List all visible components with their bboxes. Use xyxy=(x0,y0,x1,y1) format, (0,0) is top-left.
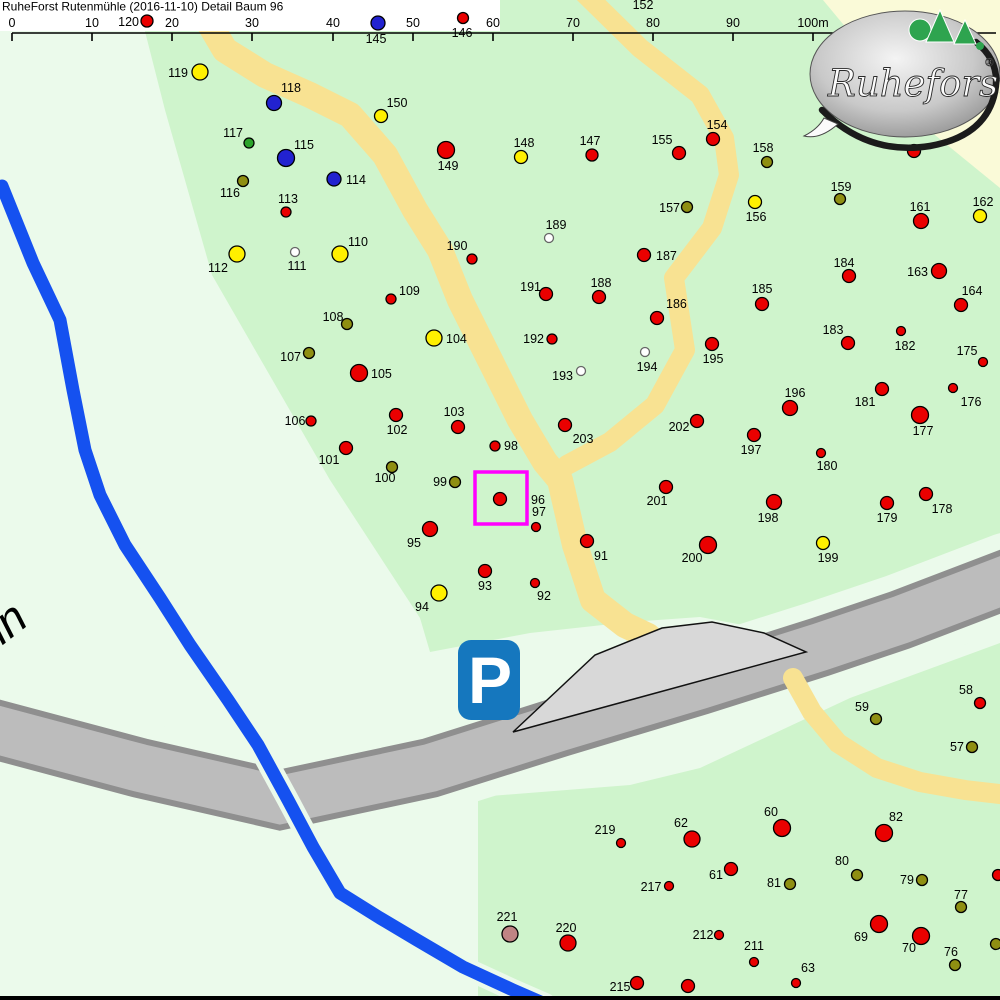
tree-dot-183[interactable] xyxy=(842,337,855,350)
tree-dot-215[interactable] xyxy=(631,977,644,990)
tree-dot-159[interactable] xyxy=(835,194,846,205)
tree-label-177: 177 xyxy=(913,424,934,438)
extra-labels: 152 xyxy=(633,0,654,12)
tree-dot-201[interactable] xyxy=(660,481,673,494)
tree-label-211: 211 xyxy=(744,939,764,953)
tree-label-82: 82 xyxy=(889,810,903,824)
tree-dot-195[interactable] xyxy=(706,338,719,351)
tree-dot-81[interactable] xyxy=(785,879,796,890)
map-title: RuheForst Rutenmühle (2016-11-10) Detail… xyxy=(2,0,284,14)
tree-label-120: 120 xyxy=(118,15,139,29)
tree-dot-98[interactable] xyxy=(490,441,500,451)
tree-label-92: 92 xyxy=(537,589,551,603)
tree-dot-164[interactable] xyxy=(955,299,968,312)
tree-dot-187[interactable] xyxy=(638,249,651,262)
tree-dot-107[interactable] xyxy=(304,348,315,359)
tree-label-198: 198 xyxy=(758,511,779,525)
tree-dot-198[interactable] xyxy=(767,495,782,510)
tree-label-158: 158 xyxy=(753,141,774,155)
tree-label-109: 109 xyxy=(399,284,420,298)
tree-label-98: 98 xyxy=(504,439,518,453)
tree-label-105: 105 xyxy=(371,367,392,381)
tree-label-154: 154 xyxy=(707,118,728,132)
logo-wordmark: Ruheforst xyxy=(827,62,1000,105)
tree-label-70: 70 xyxy=(902,941,916,955)
tree-dot-105[interactable] xyxy=(351,365,368,382)
scale-tick-label: 60 xyxy=(486,16,500,30)
tree-label-62: 62 xyxy=(674,816,688,830)
tree-dot-57[interactable] xyxy=(967,742,978,753)
tree-label-179: 179 xyxy=(877,511,898,525)
tree-dot-190[interactable] xyxy=(467,254,477,264)
tree-label-191: 191 xyxy=(520,280,541,294)
tree-dot-103[interactable] xyxy=(452,421,465,434)
tree-dot-161[interactable] xyxy=(914,214,929,229)
tree-label-79: 79 xyxy=(900,873,914,887)
tree-dot-179[interactable] xyxy=(881,497,894,510)
tree-label-93: 93 xyxy=(478,579,492,593)
tree-label-193: 193 xyxy=(552,369,573,383)
tree-label-99: 99 xyxy=(433,475,447,489)
tree-dot-180[interactable] xyxy=(817,449,826,458)
tree-label-111: 111 xyxy=(287,259,306,273)
tree-dot-182[interactable] xyxy=(897,327,906,336)
tree-dot-211[interactable] xyxy=(750,958,759,967)
tree-label-197: 197 xyxy=(741,443,762,457)
tree-label-106: 106 xyxy=(285,414,306,428)
tree-label-183: 183 xyxy=(823,323,844,337)
tree-label-118: 118 xyxy=(281,81,301,95)
tree-label-97: 97 xyxy=(532,505,546,519)
tree-dot-185[interactable] xyxy=(756,298,769,311)
tree-dot-102[interactable] xyxy=(390,409,403,422)
tree-label-159: 159 xyxy=(831,180,852,194)
tree-dot-203[interactable] xyxy=(559,419,572,432)
tree-dot-145[interactable] xyxy=(371,16,385,30)
tree-label-200: 200 xyxy=(682,551,703,565)
tree-label-119: 119 xyxy=(168,66,188,80)
tree-dot-62[interactable] xyxy=(684,831,700,847)
scale-tick-label: 40 xyxy=(326,16,340,30)
tree-dot-77[interactable] xyxy=(956,902,967,913)
tree-label-103: 103 xyxy=(444,405,465,419)
tree-dot-197[interactable] xyxy=(748,429,761,442)
tree-dot-178[interactable] xyxy=(920,488,933,501)
tree-dot-184[interactable] xyxy=(843,270,856,283)
tree-label-215: 215 xyxy=(610,980,631,994)
tree-label-107: 107 xyxy=(280,350,301,364)
tree-dot-150[interactable] xyxy=(375,110,388,123)
scale-tick-label: 10 xyxy=(85,16,99,30)
tree-label-217: 217 xyxy=(641,880,662,894)
tree-dot-189[interactable] xyxy=(545,234,554,243)
parking-icon-letter: P xyxy=(468,643,512,717)
tree-label-57: 57 xyxy=(950,740,964,754)
tree-label-81: 81 xyxy=(767,876,781,890)
tree-label-185: 185 xyxy=(752,282,773,296)
tree-label-196: 196 xyxy=(785,386,806,400)
tree-dot-unlabeled[interactable] xyxy=(993,870,1000,881)
tree-dot-59[interactable] xyxy=(871,714,882,725)
tree-label-219: 219 xyxy=(595,823,616,837)
tree-label-147: 147 xyxy=(580,134,601,148)
tree-dot-148[interactable] xyxy=(515,151,528,164)
tree-label-189: 189 xyxy=(546,218,567,232)
tree-dot-119[interactable] xyxy=(192,64,208,80)
tree-label-148: 148 xyxy=(514,136,535,150)
tree-dot-147[interactable] xyxy=(586,149,598,161)
tree-label-190: 190 xyxy=(447,239,468,253)
tree-dot-196[interactable] xyxy=(783,401,798,416)
tree-label-192: 192 xyxy=(523,332,544,346)
logo-tree-dot-icon xyxy=(976,42,984,50)
tree-label-76: 76 xyxy=(944,945,958,959)
tree-dot-91[interactable] xyxy=(581,535,594,548)
scale-tick-label: 100m xyxy=(797,16,828,30)
tree-label-176: 176 xyxy=(961,395,982,409)
tree-dot-118[interactable] xyxy=(267,96,282,111)
tree-label-114: 114 xyxy=(346,173,366,187)
tree-label-117: 117 xyxy=(223,126,243,140)
tree-dot-97[interactable] xyxy=(532,523,541,532)
tree-dot-149[interactable] xyxy=(438,142,455,159)
tree-label-104: 104 xyxy=(446,332,467,346)
tree-label-108: 108 xyxy=(323,310,344,324)
tree-label-161: 161 xyxy=(910,200,931,214)
tree-label-203: 203 xyxy=(573,432,594,446)
tree-dot-193[interactable] xyxy=(577,367,586,376)
tree-dot-61[interactable] xyxy=(725,863,738,876)
tree-dot-106[interactable] xyxy=(306,416,316,426)
tree-dot-117[interactable] xyxy=(244,138,254,148)
tree-dot-154[interactable] xyxy=(707,133,720,146)
tree-label-181: 181 xyxy=(855,395,876,409)
tree-dot-80[interactable] xyxy=(852,870,863,881)
tree-label-199: 199 xyxy=(818,551,839,565)
tree-label-149: 149 xyxy=(438,159,459,173)
scale-tick-label: 90 xyxy=(726,16,740,30)
logo-registered-mark: ® xyxy=(984,56,995,69)
scale-tick-label: 80 xyxy=(646,16,660,30)
tree-label-95: 95 xyxy=(407,536,421,550)
tree-label-220: 220 xyxy=(556,921,577,935)
tree-dot-175[interactable] xyxy=(979,358,988,367)
tree-dot-158[interactable] xyxy=(762,157,773,168)
tree-label-102: 102 xyxy=(387,423,408,437)
tree-label-194: 194 xyxy=(637,360,658,374)
tree-label-178: 178 xyxy=(932,502,953,516)
tree-label-77: 77 xyxy=(954,888,968,902)
tree-dot-111[interactable] xyxy=(291,248,300,257)
tree-label-162: 162 xyxy=(973,195,994,209)
tree-label-58: 58 xyxy=(959,683,973,697)
tree-label-163: 163 xyxy=(907,265,928,279)
tree-label-184: 184 xyxy=(834,256,855,270)
scale-tick-label: 20 xyxy=(165,16,179,30)
tree-dot-104[interactable] xyxy=(426,330,442,346)
tree-dot-199[interactable] xyxy=(817,537,830,550)
tree-label-94: 94 xyxy=(415,600,429,614)
tree-dot-95[interactable] xyxy=(423,522,438,537)
tree-dot-162[interactable] xyxy=(974,210,987,223)
tree-dot-176[interactable] xyxy=(949,384,958,393)
tree-dot-214[interactable] xyxy=(682,980,695,993)
scale-tick-label: 0 xyxy=(9,16,16,30)
tree-dot-221[interactable] xyxy=(502,926,518,942)
tree-dot-unlabeled[interactable] xyxy=(991,939,1000,950)
tree-label-113: 113 xyxy=(278,192,298,206)
tree-label-100: 100 xyxy=(375,471,396,485)
tree-label-221: 221 xyxy=(497,910,518,924)
tree-dot-217[interactable] xyxy=(665,882,674,891)
tree-label-69: 69 xyxy=(854,930,868,944)
tree-label-59: 59 xyxy=(855,700,869,714)
tree-label-155: 155 xyxy=(652,133,673,147)
tree-label-116: 116 xyxy=(220,186,240,200)
scale-tick-label: 70 xyxy=(566,16,580,30)
tree-dot-109[interactable] xyxy=(386,294,396,304)
tree-dot-181[interactable] xyxy=(876,383,889,396)
tree-label-115: 115 xyxy=(294,138,314,152)
bottom-border xyxy=(0,996,1000,1000)
tree-label-186: 186 xyxy=(666,297,687,311)
tree-dot-177[interactable] xyxy=(912,407,929,424)
tree-label-63: 63 xyxy=(801,961,815,975)
tree-dot-82[interactable] xyxy=(876,825,893,842)
tree-dot-79[interactable] xyxy=(917,875,928,886)
tree-dot-146[interactable] xyxy=(458,13,469,24)
tree-dot-163[interactable] xyxy=(932,264,947,279)
tree-label-187: 187 xyxy=(656,249,677,263)
tree-dot-202[interactable] xyxy=(691,415,704,428)
tree-label-156: 156 xyxy=(746,210,767,224)
tree-label-60: 60 xyxy=(764,805,778,819)
tree-dot-157[interactable] xyxy=(682,202,693,213)
tree-dot-92[interactable] xyxy=(531,579,540,588)
tree-dot-58[interactable] xyxy=(975,698,986,709)
tree-label-188: 188 xyxy=(591,276,612,290)
tree-label-202: 202 xyxy=(669,420,690,434)
tree-dot-93[interactable] xyxy=(479,565,492,578)
tree-label-201: 201 xyxy=(647,494,668,508)
tree-label-61: 61 xyxy=(709,868,723,882)
tree-dot-192[interactable] xyxy=(547,334,557,344)
tree-label-145: 145 xyxy=(366,32,387,46)
tree-dot-156[interactable] xyxy=(749,196,762,209)
tree-dot-155[interactable] xyxy=(673,147,686,160)
tree-label-175: 175 xyxy=(957,344,978,358)
tree-dot-120[interactable] xyxy=(141,15,153,27)
tree-label-157: 157 xyxy=(659,201,680,215)
tree-dot-112[interactable] xyxy=(229,246,245,262)
tree-dot-94[interactable] xyxy=(431,585,447,601)
tree-label-80: 80 xyxy=(835,854,849,868)
tree-dot-60[interactable] xyxy=(774,820,791,837)
tree-dot-191[interactable] xyxy=(540,288,553,301)
tree-label-110: 110 xyxy=(348,235,368,249)
tree-label-150: 150 xyxy=(387,96,408,110)
tree-dot-115[interactable] xyxy=(278,150,295,167)
tree-dot-69[interactable] xyxy=(871,916,888,933)
tree-dot-219[interactable] xyxy=(617,839,626,848)
tree-dot-99[interactable] xyxy=(450,477,461,488)
tree-label-146: 146 xyxy=(452,26,473,40)
tree-dot-63[interactable] xyxy=(792,979,801,988)
tree-dot-110[interactable] xyxy=(332,246,348,262)
tree-dot-186[interactable] xyxy=(651,312,664,325)
tree-dot-116[interactable] xyxy=(238,176,249,187)
forest-map: hn RuheForst Rutenmühle (2016-11-10) Det… xyxy=(0,0,1000,1000)
tree-dot-194[interactable] xyxy=(641,348,650,357)
map-root: hn RuheForst Rutenmühle (2016-11-10) Det… xyxy=(0,0,1000,1000)
tree-dot-220[interactable] xyxy=(560,935,576,951)
tree-label-212: 212 xyxy=(693,928,714,942)
tree-label-112: 112 xyxy=(208,261,228,275)
scale-tick-label: 30 xyxy=(245,16,259,30)
tree-dot-114[interactable] xyxy=(327,172,341,186)
tree-dot-76[interactable] xyxy=(950,960,961,971)
tree-dot-101[interactable] xyxy=(340,442,353,455)
tree-label-101: 101 xyxy=(319,453,340,467)
map-label: 152 xyxy=(633,0,654,12)
tree-dot-96[interactable] xyxy=(494,493,507,506)
tree-label-182: 182 xyxy=(895,339,916,353)
tree-label-91: 91 xyxy=(594,549,608,563)
tree-dot-212[interactable] xyxy=(715,931,724,940)
tree-label-180: 180 xyxy=(817,459,838,473)
scale-tick-label: 50 xyxy=(406,16,420,30)
parking-icon: P xyxy=(458,640,520,720)
tree-dot-113[interactable] xyxy=(281,207,291,217)
tree-dot-188[interactable] xyxy=(593,291,606,304)
tree-label-195: 195 xyxy=(703,352,724,366)
tree-label-164: 164 xyxy=(962,284,983,298)
